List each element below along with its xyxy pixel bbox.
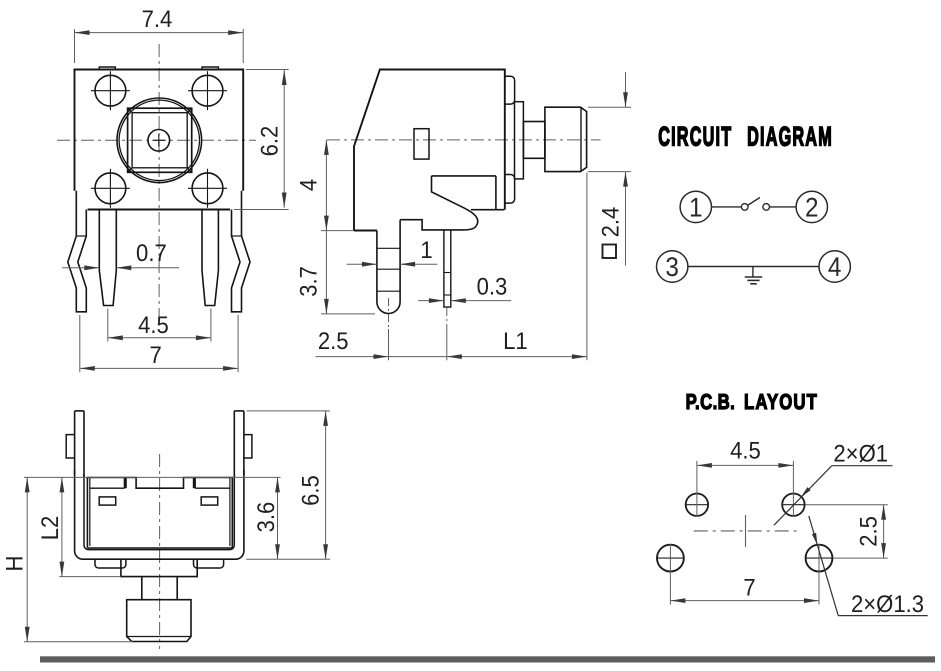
svg-text:L2: L2 xyxy=(37,516,64,541)
svg-text:P.C.B.: P.C.B. xyxy=(686,390,736,414)
svg-text:7: 7 xyxy=(149,342,161,369)
svg-text:2.5: 2.5 xyxy=(318,328,349,355)
svg-text:2: 2 xyxy=(805,193,819,223)
svg-text:7: 7 xyxy=(743,575,755,602)
svg-text:4.5: 4.5 xyxy=(730,438,761,465)
svg-text:2×Ø1.3: 2×Ø1.3 xyxy=(851,591,924,618)
svg-text:2×Ø1: 2×Ø1 xyxy=(833,441,888,468)
svg-text:7.4: 7.4 xyxy=(142,6,173,33)
svg-text:1: 1 xyxy=(689,193,703,223)
svg-text:0.7: 0.7 xyxy=(136,240,167,267)
svg-text:2.5: 2.5 xyxy=(856,516,883,547)
svg-text:CIRCUIT: CIRCUIT xyxy=(658,121,732,151)
svg-text:6.2: 6.2 xyxy=(257,126,284,157)
svg-text:4.5: 4.5 xyxy=(138,312,169,339)
svg-text:L1: L1 xyxy=(503,328,528,355)
svg-text:3.6: 3.6 xyxy=(253,502,280,533)
svg-text:DIAGRAM: DIAGRAM xyxy=(747,121,833,151)
svg-text:6.5: 6.5 xyxy=(298,475,325,506)
svg-text:H: H xyxy=(2,556,29,572)
svg-text:1: 1 xyxy=(420,237,432,264)
svg-text:4: 4 xyxy=(828,252,842,282)
svg-text:3: 3 xyxy=(665,252,679,282)
svg-text:LAYOUT: LAYOUT xyxy=(744,390,818,414)
svg-text:0.3: 0.3 xyxy=(477,274,508,301)
svg-text:2.4: 2.4 xyxy=(598,207,625,238)
svg-text:3.7: 3.7 xyxy=(296,266,323,297)
svg-text:4: 4 xyxy=(296,179,323,191)
